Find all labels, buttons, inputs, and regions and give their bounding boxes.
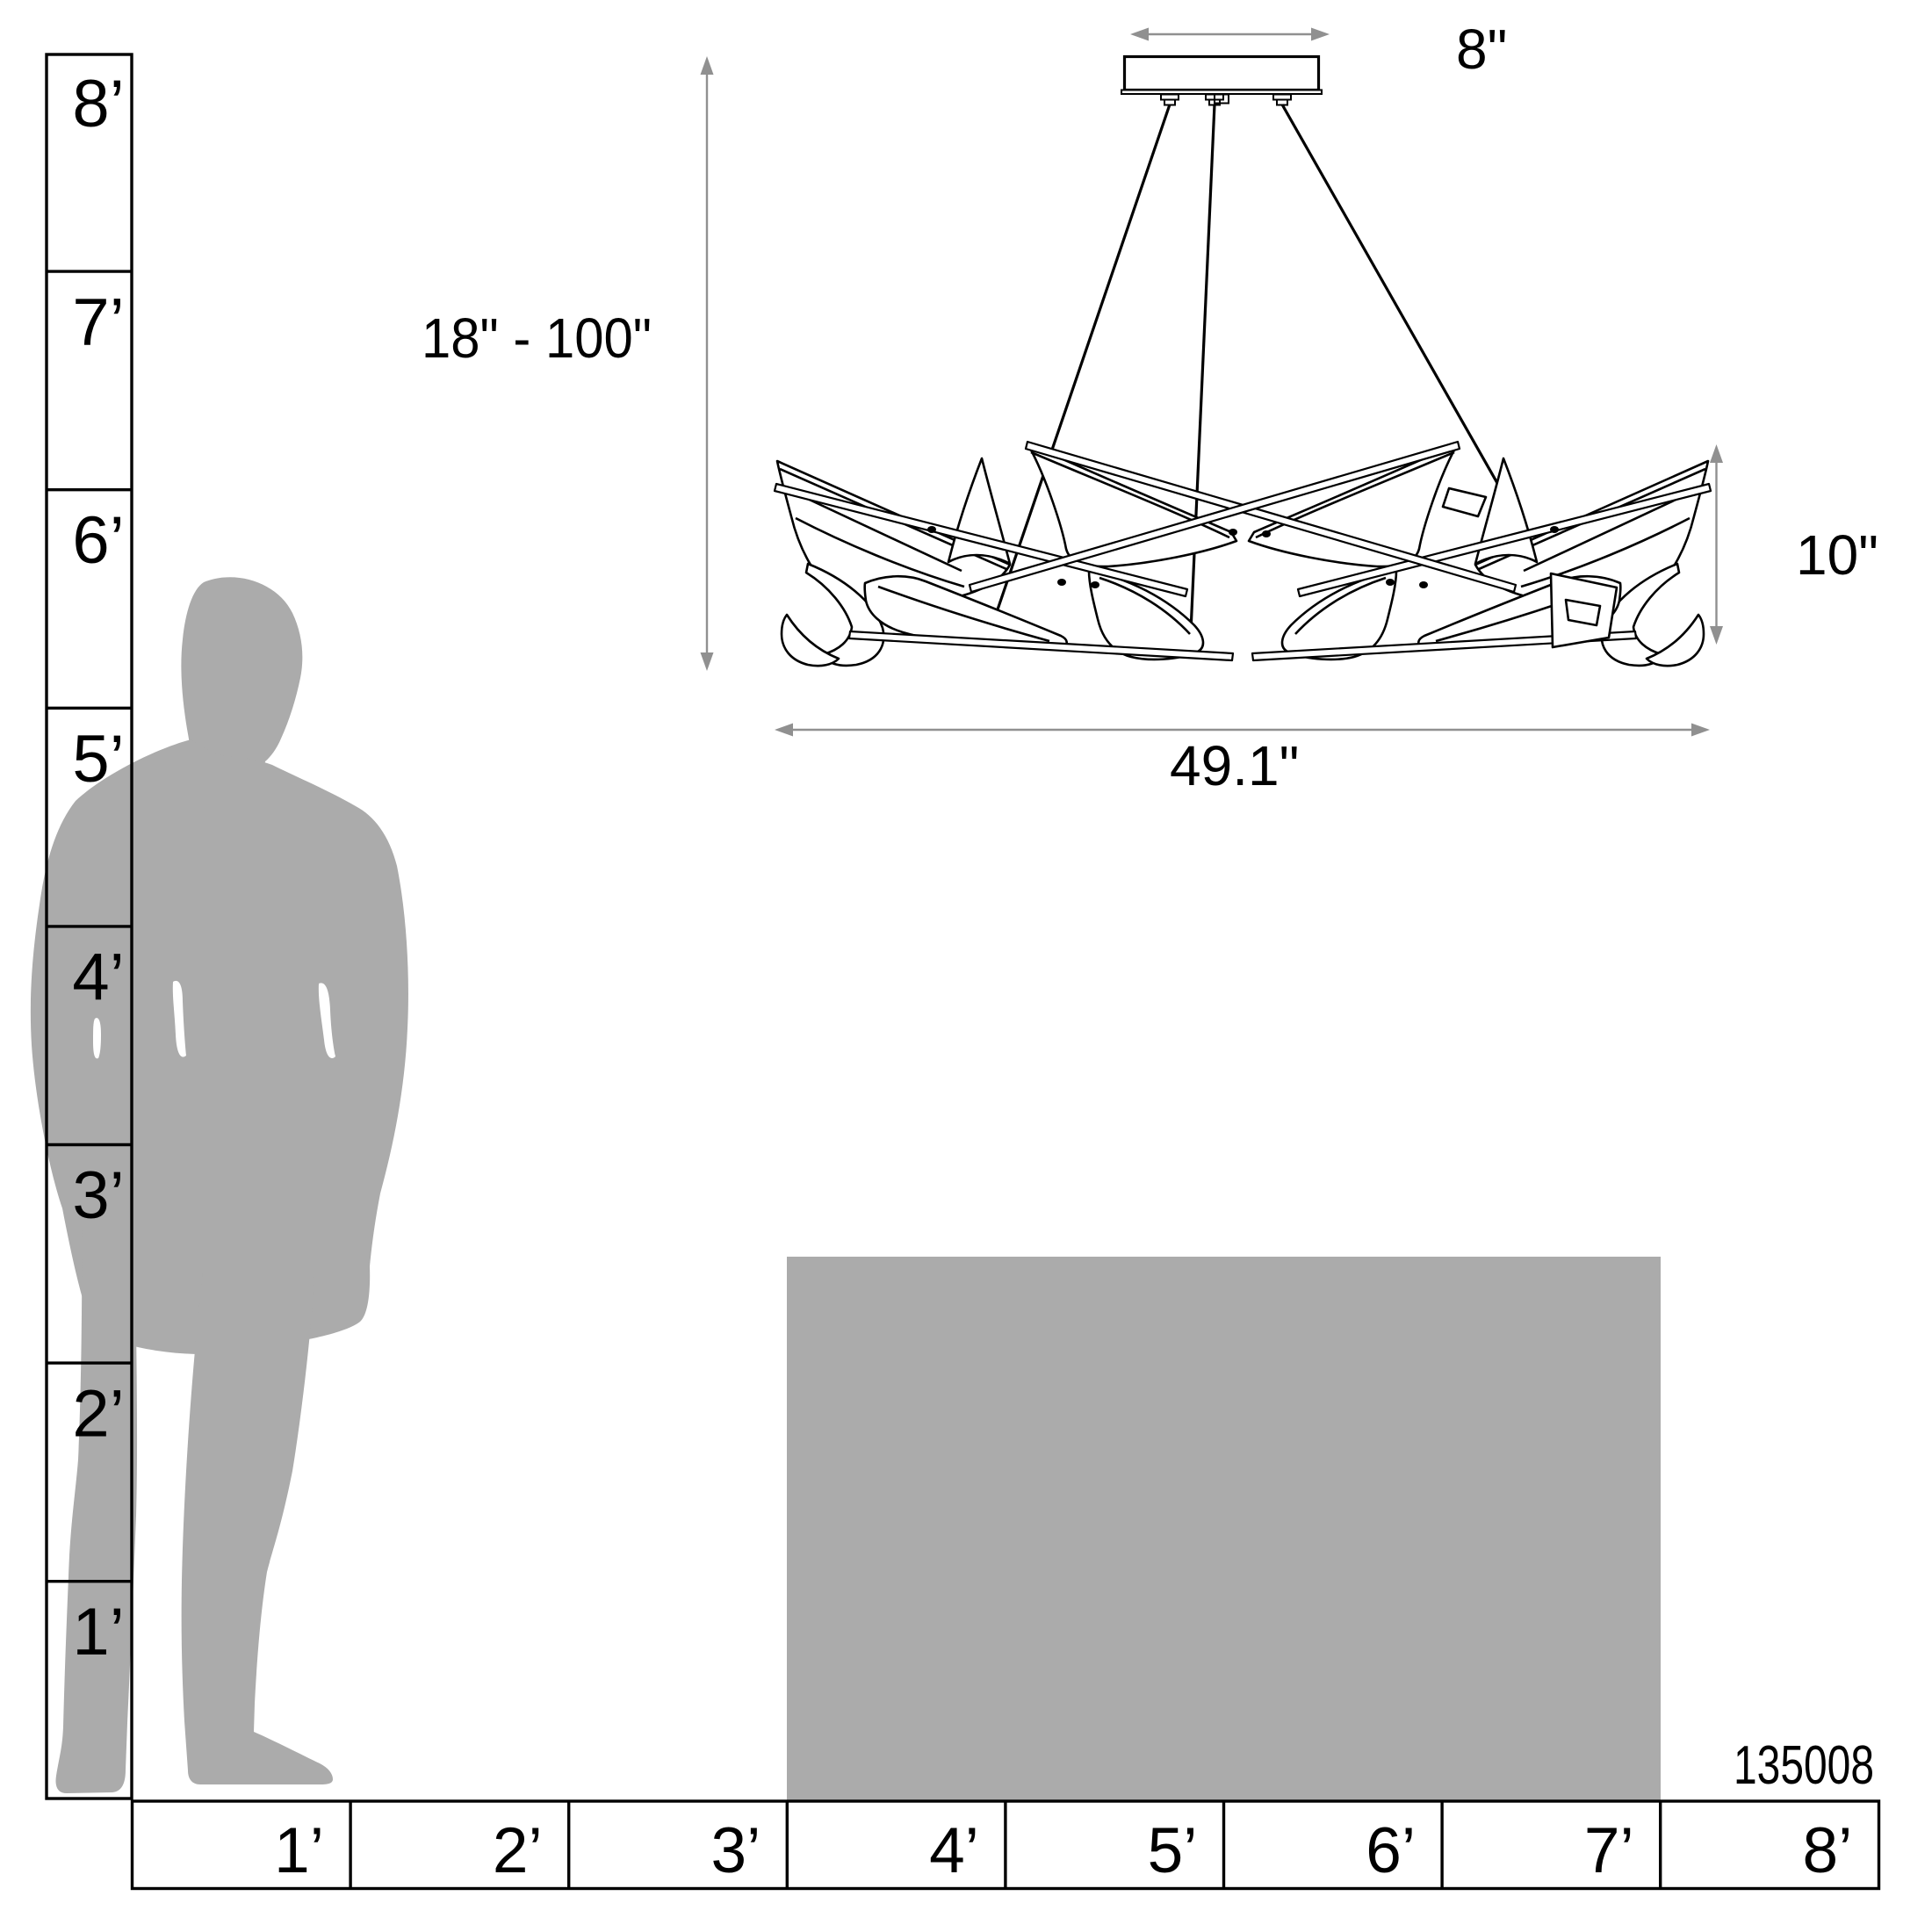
svg-text:2’: 2’ [493,1815,543,1886]
svg-text:5’: 5’ [72,722,124,797]
svg-text:4’: 4’ [929,1815,979,1886]
svg-text:8’: 8’ [1802,1815,1852,1886]
svg-text:8’: 8’ [72,67,124,141]
svg-text:6’: 6’ [1366,1815,1416,1886]
svg-text:2’: 2’ [72,1377,124,1452]
svg-text:8": 8" [1456,18,1507,81]
svg-text:18" - 100": 18" - 100" [422,306,652,370]
svg-text:7’: 7’ [1584,1815,1634,1886]
svg-text:6’: 6’ [72,503,124,578]
svg-text:10": 10" [1796,523,1878,587]
svg-text:135008: 135008 [1734,1735,1874,1796]
svg-text:5’: 5’ [1148,1815,1198,1886]
svg-text:1’: 1’ [274,1815,324,1886]
svg-text:49.1": 49.1" [1170,734,1299,797]
svg-text:3’: 3’ [710,1815,761,1886]
svg-text:4’: 4’ [72,940,124,1014]
svg-text:7’: 7’ [72,285,124,360]
svg-text:1’: 1’ [72,1595,124,1669]
svg-text:3’: 3’ [72,1158,124,1233]
